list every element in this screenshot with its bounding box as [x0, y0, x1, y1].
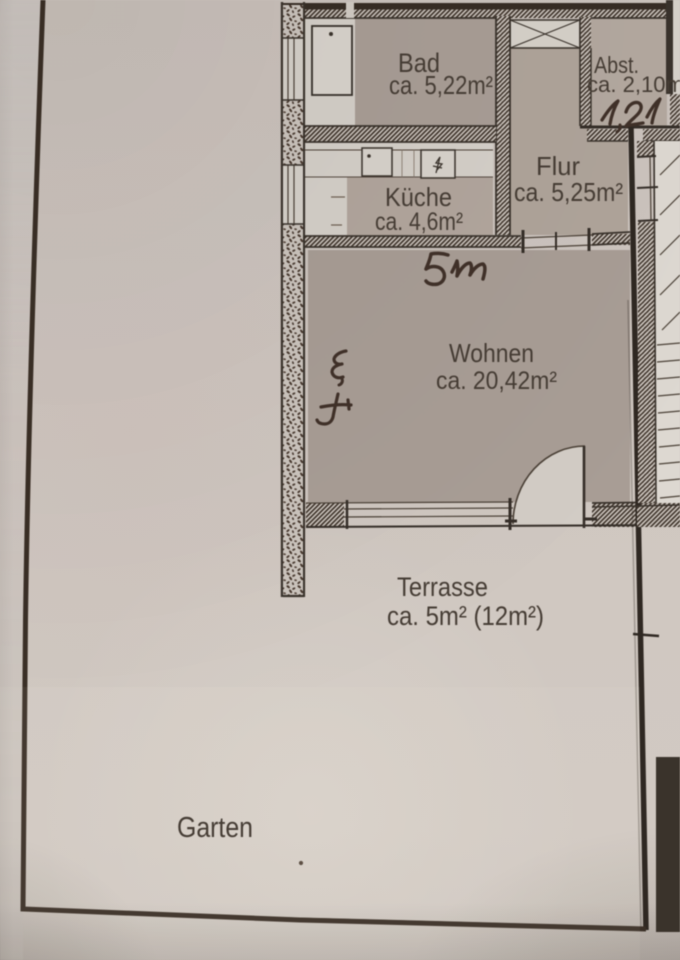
svg-text:Terrasse: Terrasse [397, 572, 488, 602]
svg-text:ca. 5,25m²: ca. 5,25m² [514, 177, 623, 207]
svg-text:ca. 2,10m: ca. 2,10m [587, 72, 680, 97]
svg-text:Garten: Garten [177, 812, 253, 844]
svg-text:Wohnen: Wohnen [449, 338, 534, 368]
svg-text:ca. 5,22m²: ca. 5,22m² [389, 70, 493, 100]
svg-text:ca. 4,6m²: ca. 4,6m² [375, 208, 463, 236]
svg-text:ca. 5m² (12m²): ca. 5m² (12m²) [387, 601, 544, 631]
svg-text:ca. 20,42m²: ca. 20,42m² [436, 367, 557, 395]
